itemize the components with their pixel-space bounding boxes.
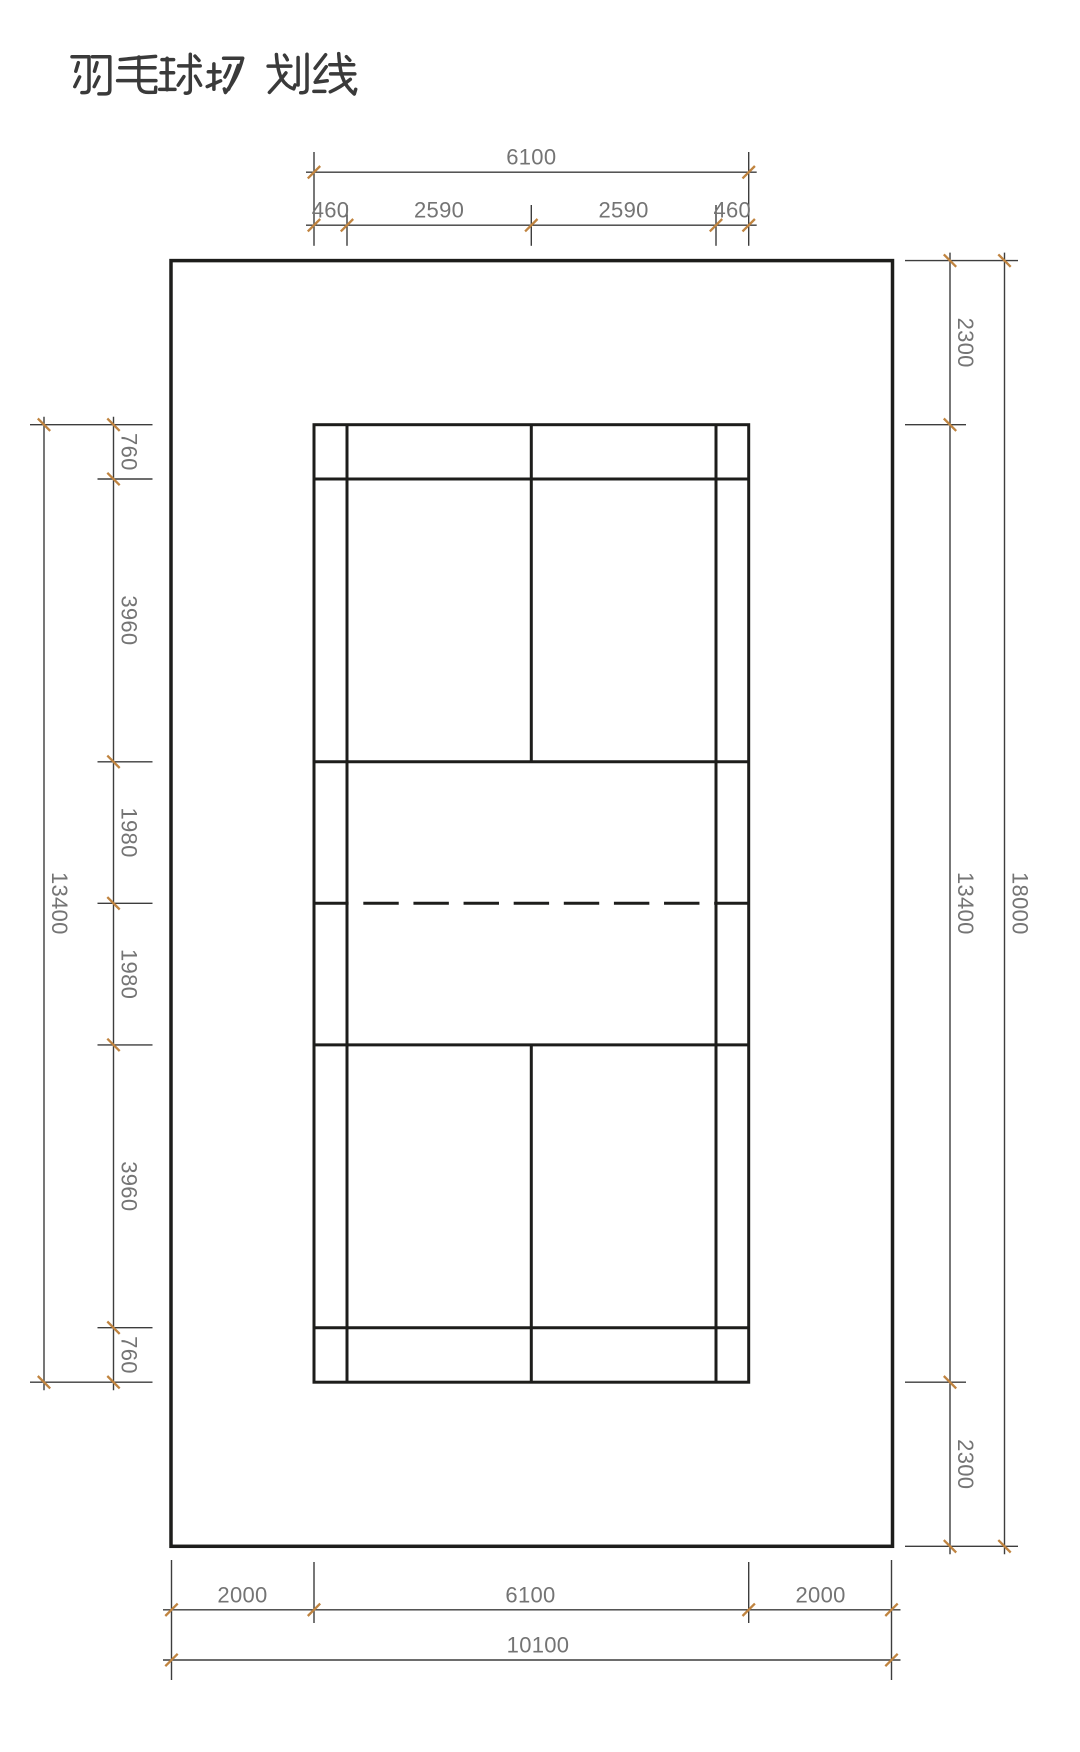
svg-text:2000: 2000 <box>796 1582 846 1607</box>
svg-text:460: 460 <box>312 198 350 223</box>
svg-text:2300: 2300 <box>953 318 978 368</box>
svg-text:6100: 6100 <box>506 145 556 170</box>
svg-text:2000: 2000 <box>217 1582 267 1607</box>
svg-text:760: 760 <box>117 1336 142 1374</box>
svg-text:1980: 1980 <box>117 949 142 999</box>
svg-text:13400: 13400 <box>953 872 978 935</box>
svg-text:760: 760 <box>117 433 142 471</box>
svg-text:460: 460 <box>713 198 751 223</box>
svg-text:10100: 10100 <box>507 1633 570 1658</box>
svg-text:13400: 13400 <box>47 872 72 935</box>
svg-text:18000: 18000 <box>1008 872 1033 935</box>
svg-text:3960: 3960 <box>117 595 142 645</box>
svg-text:2590: 2590 <box>599 198 649 223</box>
svg-text:3960: 3960 <box>117 1161 142 1211</box>
svg-text:1980: 1980 <box>117 807 142 857</box>
svg-text:6100: 6100 <box>505 1582 555 1607</box>
svg-text:2300: 2300 <box>953 1439 978 1489</box>
svg-text:2590: 2590 <box>414 198 464 223</box>
